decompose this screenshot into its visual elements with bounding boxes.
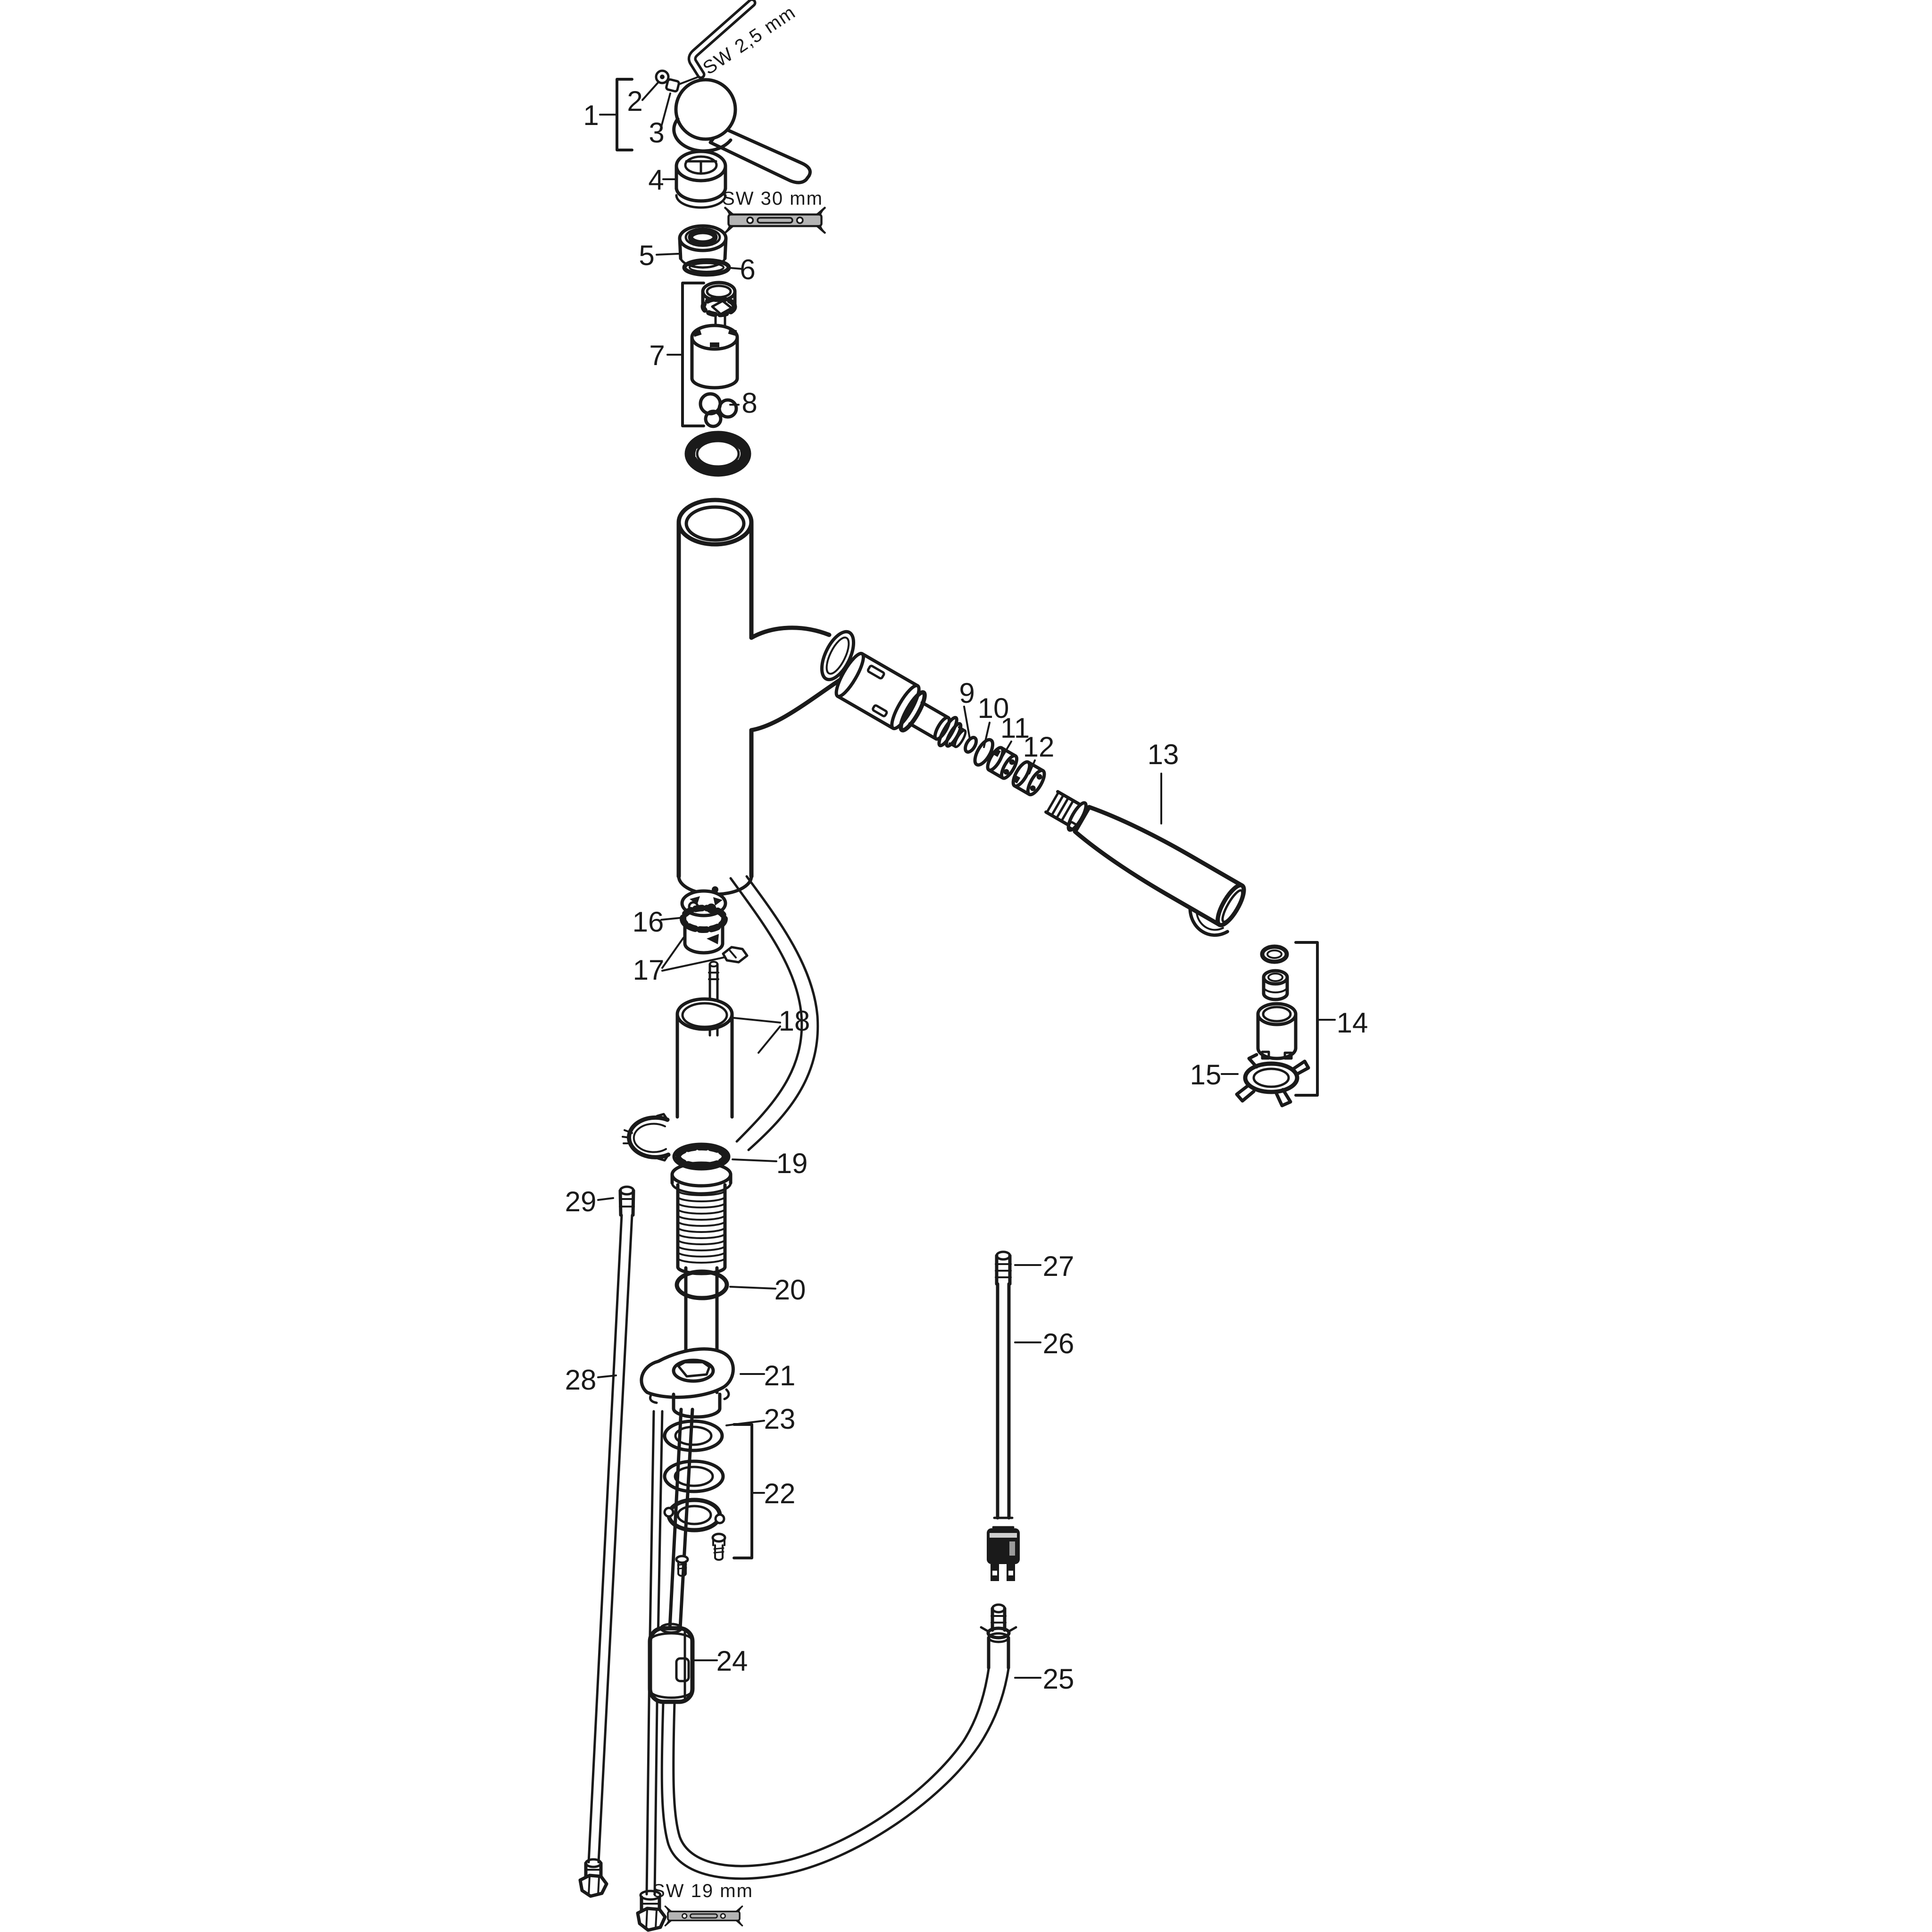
part-label-28: 28: [565, 1364, 597, 1396]
part-label-29: 29: [565, 1186, 597, 1217]
part-label-27: 27: [1043, 1250, 1074, 1282]
part-label-23: 23: [764, 1403, 796, 1435]
part-label-4: 4: [648, 164, 664, 196]
exploded-diagram: SW 2,5 mm 1 2 3 4 SW 30 mm: [0, 0, 1932, 1932]
part-label-1: 1: [583, 100, 599, 131]
part-label-6: 6: [740, 254, 755, 285]
part-label-14: 14: [1337, 1007, 1368, 1039]
part-label-26: 26: [1043, 1328, 1074, 1359]
part-label-5: 5: [639, 240, 654, 271]
tool-label-wrench-30: SW 30 mm: [722, 188, 823, 209]
part-label-15: 15: [1190, 1059, 1222, 1091]
part-label-2: 2: [627, 85, 642, 117]
part-label-17: 17: [633, 954, 665, 986]
part-24-hose-weight: [650, 1624, 692, 1702]
part-label-18: 18: [779, 1005, 810, 1037]
part-label-24: 24: [716, 1645, 748, 1677]
part-label-16: 16: [633, 906, 664, 938]
tool-label-wrench-19: SW 19 mm: [652, 1881, 753, 1901]
diagram-canvas: SW 2,5 mm 1 2 3 4 SW 30 mm: [0, 0, 1932, 1932]
part-label-12: 12: [1023, 731, 1055, 763]
part-label-3: 3: [649, 117, 664, 149]
part-label-19: 19: [776, 1148, 808, 1179]
part-label-21: 21: [764, 1360, 796, 1391]
part-label-25: 25: [1043, 1663, 1074, 1695]
part-label-20: 20: [774, 1274, 806, 1306]
part-label-9: 9: [959, 677, 974, 709]
part-label-7: 7: [649, 340, 665, 371]
part-label-13: 13: [1148, 739, 1179, 770]
part-label-8: 8: [741, 387, 757, 419]
background: [0, 0, 1932, 1932]
part-label-22: 22: [764, 1478, 796, 1509]
